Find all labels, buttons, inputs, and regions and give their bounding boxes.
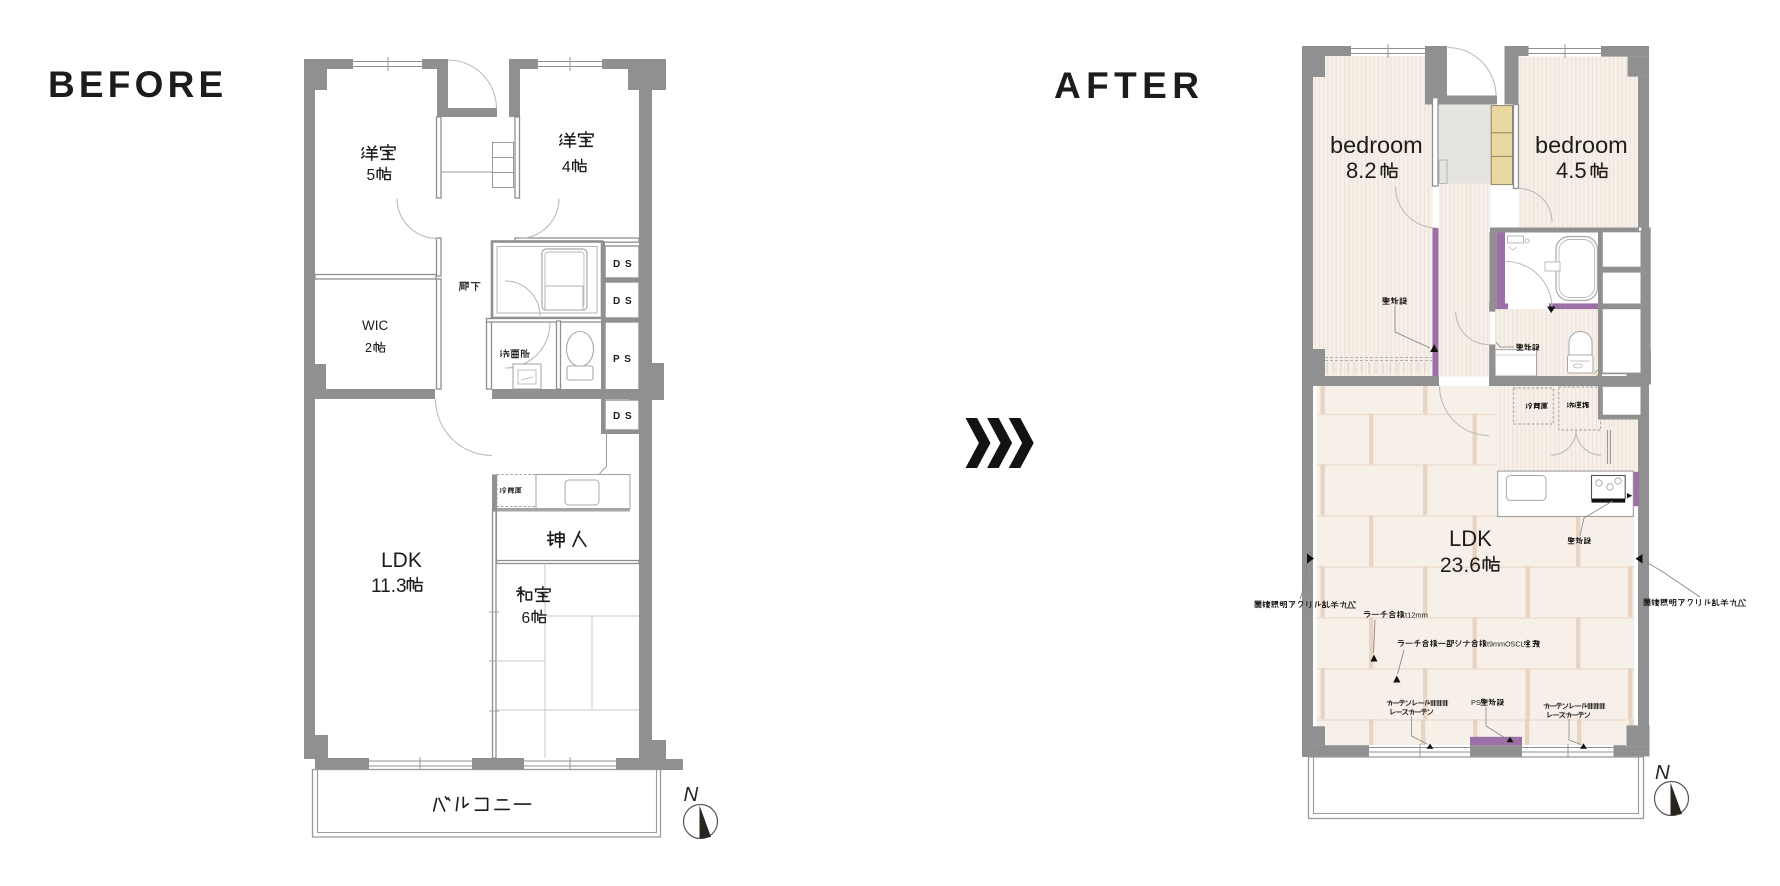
svg-text:t9mmOSCL: t9mmOSCL	[1487, 640, 1525, 649]
svg-text:PS: PS	[1471, 698, 1481, 707]
svg-text:bedroom: bedroom	[1535, 132, 1628, 158]
svg-text:11.3: 11.3	[371, 576, 407, 597]
svg-text:WIC: WIC	[362, 318, 388, 333]
svg-text:LDK: LDK	[1449, 526, 1492, 551]
svg-text:D S: D S	[613, 296, 633, 307]
svg-text:N: N	[684, 783, 699, 806]
svg-text:LDK: LDK	[381, 549, 422, 572]
svg-text:2: 2	[365, 341, 372, 355]
svg-text:bedroom: bedroom	[1330, 132, 1423, 158]
svg-text:4.5: 4.5	[1556, 158, 1587, 183]
svg-text:t12mm: t12mm	[1405, 611, 1428, 620]
svg-text:8.2: 8.2	[1346, 158, 1377, 183]
svg-text:BEFORE: BEFORE	[48, 64, 227, 105]
svg-text:6: 6	[522, 610, 531, 627]
svg-text:AFTER: AFTER	[1054, 65, 1204, 106]
svg-text:D S: D S	[613, 411, 633, 422]
svg-text:N: N	[1655, 761, 1670, 784]
svg-text:4: 4	[562, 159, 571, 176]
svg-text:D S: D S	[613, 259, 633, 270]
svg-text:P S: P S	[613, 354, 632, 365]
svg-text:5: 5	[367, 167, 376, 184]
svg-text:23.6: 23.6	[1440, 554, 1481, 577]
